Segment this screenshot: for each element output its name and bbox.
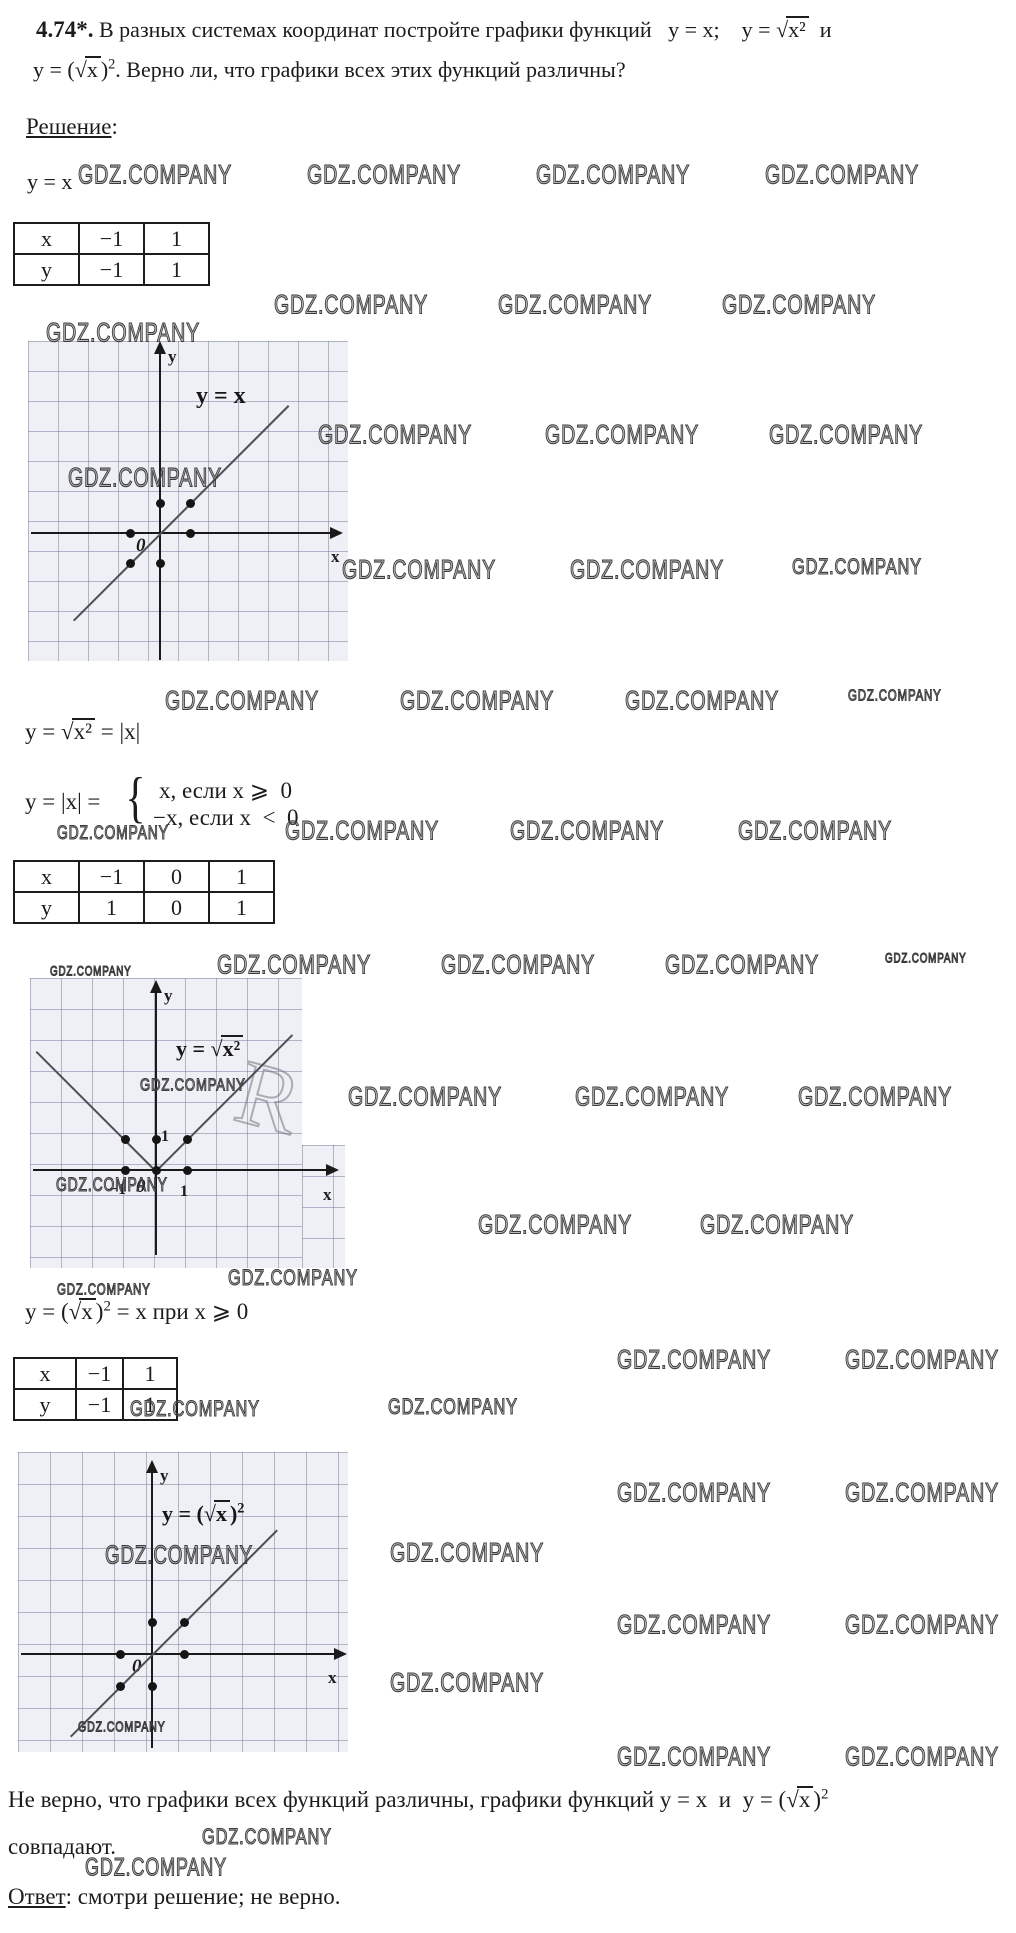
site-watermark: GDZ.COMPANY: [575, 1082, 729, 1113]
site-watermark: GDZ.COMPANY: [545, 420, 699, 451]
table-cell: y: [14, 254, 79, 285]
x-axis-arrow-icon: [334, 1648, 347, 1660]
x-axis-label: x: [331, 547, 340, 567]
function-label: y = √x²: [176, 1035, 243, 1062]
site-watermark: GDZ.COMPANY: [390, 1668, 544, 1699]
site-watermark: GDZ.COMPANY: [478, 1210, 632, 1241]
site-watermark: GDZ.COMPANY: [498, 290, 652, 321]
x-axis: [31, 532, 332, 534]
graph-y-equals-x: y x 0 y = x: [28, 341, 348, 661]
y-axis-label: y: [160, 1466, 169, 1486]
piecewise-case-2: −x, если x < 0: [153, 805, 298, 831]
table-row: y101: [14, 892, 274, 923]
site-watermark: GDZ.COMPANY: [318, 420, 472, 451]
marked-point: [116, 1682, 125, 1691]
site-watermark: GDZ.COMPANY: [46, 318, 200, 349]
site-watermark: GDZ.COMPANY: [570, 555, 724, 586]
site-watermark: GDZ.COMPANY: [307, 160, 461, 191]
site-watermark: GDZ.COMPANY: [885, 950, 967, 966]
marked-point: [180, 1618, 189, 1627]
site-watermark: GDZ.COMPANY: [56, 1174, 168, 1196]
table-cell: 1: [144, 254, 209, 285]
site-watermark: GDZ.COMPANY: [400, 686, 554, 717]
table-cell: 1: [209, 892, 274, 923]
table-row: x−11: [14, 1358, 177, 1389]
function-label: y = x: [196, 383, 246, 410]
marked-point: [183, 1166, 192, 1175]
site-watermark: GDZ.COMPANY: [625, 686, 779, 717]
marked-point: [148, 1618, 157, 1627]
x-axis: [33, 1169, 327, 1171]
site-watermark: GDZ.COMPANY: [140, 1076, 246, 1096]
grid-paper: [18, 1452, 348, 1752]
site-watermark: GDZ.COMPANY: [348, 1082, 502, 1113]
radicand: x: [797, 1786, 814, 1812]
x-axis-label: x: [328, 1668, 337, 1688]
site-watermark: GDZ.COMPANY: [78, 160, 232, 191]
radicand: x: [79, 1298, 96, 1324]
site-watermark: GDZ.COMPANY: [845, 1742, 999, 1773]
site-watermark: GDZ.COMPANY: [617, 1478, 771, 1509]
table-cell: x: [14, 861, 79, 892]
site-watermark: GDZ.COMPANY: [617, 1345, 771, 1376]
marked-point: [156, 499, 165, 508]
site-watermark: GDZ.COMPANY: [285, 816, 439, 847]
radicand: x²: [72, 718, 95, 744]
marked-point: [152, 1135, 161, 1144]
site-watermark: GDZ.COMPANY: [202, 1825, 332, 1851]
table-cell: 1: [209, 861, 274, 892]
site-watermark: GDZ.COMPANY: [738, 816, 892, 847]
answer-line: Ответ: смотри решение; не верно.: [8, 1884, 341, 1910]
site-watermark: GDZ.COMPANY: [845, 1478, 999, 1509]
site-watermark: GDZ.COMPANY: [342, 555, 496, 586]
site-watermark: GDZ.COMPANY: [50, 963, 132, 979]
marked-point: [180, 1650, 189, 1659]
radicand: x²: [786, 16, 809, 41]
table-cell: −1: [79, 254, 144, 285]
site-watermark: GDZ.COMPANY: [798, 1082, 952, 1113]
answer-label: Ответ: [8, 1884, 66, 1909]
site-watermark: GDZ.COMPANY: [792, 555, 922, 581]
site-watermark: GDZ.COMPANY: [441, 950, 595, 981]
y-axis-label: y: [168, 347, 177, 367]
table-cell: 1: [123, 1358, 177, 1389]
graph-y-equals-sqrt-x2: y x 0 1 −1 1 y = √x² R: [30, 978, 345, 1268]
site-watermark: GDZ.COMPANY: [165, 686, 319, 717]
marked-point: [121, 1135, 130, 1144]
table-cell: 0: [144, 892, 209, 923]
marked-point: [116, 1650, 125, 1659]
x-axis-arrow-icon: [330, 527, 343, 539]
site-watermark: GDZ.COMPANY: [722, 290, 876, 321]
table-row: y−11: [14, 254, 209, 285]
site-watermark: GDZ.COMPANY: [769, 420, 923, 451]
y-axis: [155, 990, 157, 1255]
site-watermark: GDZ.COMPANY: [845, 1345, 999, 1376]
site-watermark: GDZ.COMPANY: [130, 1397, 260, 1423]
site-watermark: GDZ.COMPANY: [105, 1540, 253, 1570]
piecewise-case-1: x, если x ⩾ 0: [159, 778, 292, 804]
site-watermark: GDZ.COMPANY: [536, 160, 690, 191]
y-axis-arrow-icon: [146, 1460, 158, 1473]
site-watermark: GDZ.COMPANY: [57, 822, 169, 844]
site-watermark: GDZ.COMPANY: [765, 160, 919, 191]
x-axis-arrow-icon: [326, 1164, 339, 1176]
y-axis-label: y: [164, 986, 173, 1006]
table-row: x−11: [14, 223, 209, 254]
y-tick-1: 1: [161, 1128, 169, 1146]
marked-point: [126, 529, 135, 538]
problem-line-1: 4.74*. В разных системах координат постр…: [36, 16, 832, 43]
table-cell: y: [14, 1389, 76, 1420]
marked-point: [156, 559, 165, 568]
x-tick-1: 1: [180, 1183, 188, 1201]
site-watermark: GDZ.COMPANY: [68, 463, 222, 494]
problem-number: 4.74*.: [36, 17, 94, 42]
value-table-2: x−101y101: [13, 860, 275, 924]
marked-point: [186, 529, 195, 538]
table-cell: y: [14, 892, 79, 923]
value-table-1: x−11y−11: [13, 222, 210, 286]
marked-point: [183, 1135, 192, 1144]
site-watermark: GDZ.COMPANY: [848, 686, 942, 704]
table-cell: −1: [79, 223, 144, 254]
problem-line-2: y = (√x)2. Верно ли, что графики всех эт…: [33, 56, 626, 83]
site-watermark: GDZ.COMPANY: [617, 1742, 771, 1773]
site-watermark: GDZ.COMPANY: [700, 1210, 854, 1241]
radicand: x: [85, 56, 101, 81]
graph-y-equals-sqrt-x-squared: y x 0 y = (√x)2: [18, 1452, 348, 1752]
site-watermark: GDZ.COMPANY: [217, 950, 371, 981]
solution-heading: Решение:: [26, 114, 118, 140]
table-cell: 1: [79, 892, 144, 923]
site-watermark: GDZ.COMPANY: [228, 1266, 358, 1292]
marked-point: [186, 499, 195, 508]
x-axis: [21, 1653, 335, 1655]
site-watermark: GDZ.COMPANY: [57, 1280, 151, 1298]
formula-y-equals-x: y = x: [27, 169, 72, 195]
site-watermark: GDZ.COMPANY: [845, 1610, 999, 1641]
table-cell: −1: [76, 1358, 123, 1389]
site-watermark: GDZ.COMPANY: [665, 950, 819, 981]
function-label: y = (√x)2: [162, 1500, 244, 1527]
conclusion-line-1: Не верно, что графики всех функций разли…: [8, 1786, 828, 1813]
table-cell: −1: [79, 861, 144, 892]
formula-sqrt-x-squared: y = (√x)2 = x при x ⩾ 0: [25, 1298, 248, 1325]
site-watermark: GDZ.COMPANY: [78, 1718, 166, 1735]
brace: {: [125, 770, 145, 826]
site-watermark: GDZ.COMPANY: [510, 816, 664, 847]
formula-sqrt-x2: y = √x² = |x|: [25, 718, 140, 745]
site-watermark: GDZ.COMPANY: [85, 1853, 227, 1882]
marked-point: [148, 1682, 157, 1691]
table-cell: x: [14, 1358, 76, 1389]
site-watermark: GDZ.COMPANY: [388, 1395, 518, 1421]
x-axis-label: x: [323, 1185, 332, 1205]
y-axis-arrow-icon: [150, 980, 162, 993]
site-watermark: GDZ.COMPANY: [274, 290, 428, 321]
table-cell: −1: [76, 1389, 123, 1420]
document-page: 4.74*. В разных системах координат постр…: [0, 0, 1016, 1933]
table-cell: x: [14, 223, 79, 254]
y-axis: [151, 1470, 153, 1748]
table-row: x−101: [14, 861, 274, 892]
radicand: x²: [221, 1035, 244, 1060]
radicand: x: [214, 1500, 230, 1525]
site-watermark: GDZ.COMPANY: [617, 1610, 771, 1641]
table-cell: 0: [144, 861, 209, 892]
marked-point: [126, 559, 135, 568]
site-watermark: GDZ.COMPANY: [390, 1538, 544, 1569]
table-cell: 1: [144, 223, 209, 254]
